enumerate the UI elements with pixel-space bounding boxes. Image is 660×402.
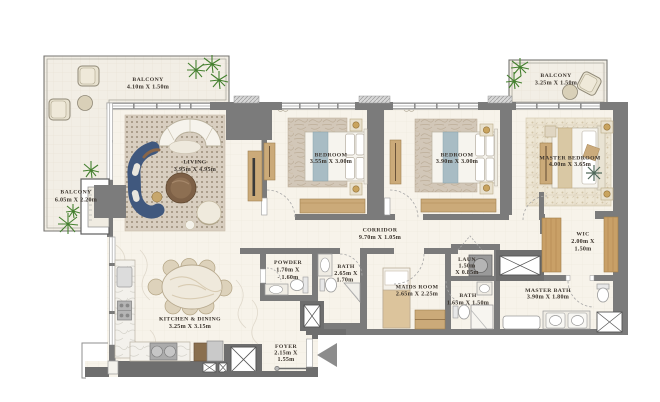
svg-text:BALCONY: BALCONY xyxy=(60,190,91,196)
svg-text:4.10m X 1.50m: 4.10m X 1.50m xyxy=(127,85,169,91)
svg-text:2.15m X: 2.15m X xyxy=(274,351,298,357)
svg-text:X 0.85m: X 0.85m xyxy=(455,270,478,276)
svg-text:3.90m X 1.80m: 3.90m X 1.80m xyxy=(527,295,569,301)
svg-text:6.05m X 2.20m: 6.05m X 2.20m xyxy=(55,198,97,204)
svg-text:KITCHEN & DINING: KITCHEN & DINING xyxy=(159,317,221,323)
svg-text:3.25m X 3.15m: 3.25m X 3.15m xyxy=(169,324,211,330)
svg-text:FOYER: FOYER xyxy=(275,344,297,350)
svg-text:1.70m X: 1.70m X xyxy=(276,268,300,274)
svg-text:1.70m: 1.70m xyxy=(337,278,354,284)
svg-text:MASTER BATH: MASTER BATH xyxy=(525,288,571,294)
svg-text:1.55m: 1.55m xyxy=(278,357,295,363)
svg-text:9.70m X 1.05m: 9.70m X 1.05m xyxy=(359,235,401,241)
svg-text:MASTER BEDROOM: MASTER BEDROOM xyxy=(539,156,601,162)
svg-text:BALCONY: BALCONY xyxy=(132,77,163,83)
svg-text:MAIDS ROOM: MAIDS ROOM xyxy=(396,285,439,291)
svg-text:3.90m X 3.00m: 3.90m X 3.00m xyxy=(436,159,478,165)
svg-text:BATH: BATH xyxy=(337,264,354,270)
svg-text:2.00m X: 2.00m X xyxy=(571,239,595,245)
svg-text:BEDROOM: BEDROOM xyxy=(441,153,474,159)
svg-text:2.65m X: 2.65m X xyxy=(334,271,358,277)
svg-text:1.50m: 1.50m xyxy=(575,247,592,253)
svg-text:LIVING: LIVING xyxy=(183,160,206,166)
svg-text:1.65m X 1.50m: 1.65m X 1.50m xyxy=(447,301,489,307)
svg-text:CORRIDOR: CORRIDOR xyxy=(363,228,398,234)
svg-text:POWDER: POWDER xyxy=(274,260,302,266)
svg-text:BEDROOM: BEDROOM xyxy=(315,153,348,159)
svg-text:LAUN: LAUN xyxy=(458,257,476,263)
svg-text:3.25m X 1.50m: 3.25m X 1.50m xyxy=(535,81,577,87)
svg-text:3.95m X 4.95m: 3.95m X 4.95m xyxy=(174,167,216,173)
svg-text:- 1.60m: - 1.60m xyxy=(277,275,298,281)
svg-text:4.00m X 3.65m: 4.00m X 3.65m xyxy=(549,162,591,168)
svg-text:2.65m X 2.25m: 2.65m X 2.25m xyxy=(396,292,438,298)
svg-text:1.50m: 1.50m xyxy=(459,264,476,270)
svg-text:BATH: BATH xyxy=(459,293,476,299)
svg-text:WIC: WIC xyxy=(576,232,589,238)
svg-text:BALCONY: BALCONY xyxy=(540,73,571,79)
svg-text:3.55m X 3.00m: 3.55m X 3.00m xyxy=(310,159,352,165)
